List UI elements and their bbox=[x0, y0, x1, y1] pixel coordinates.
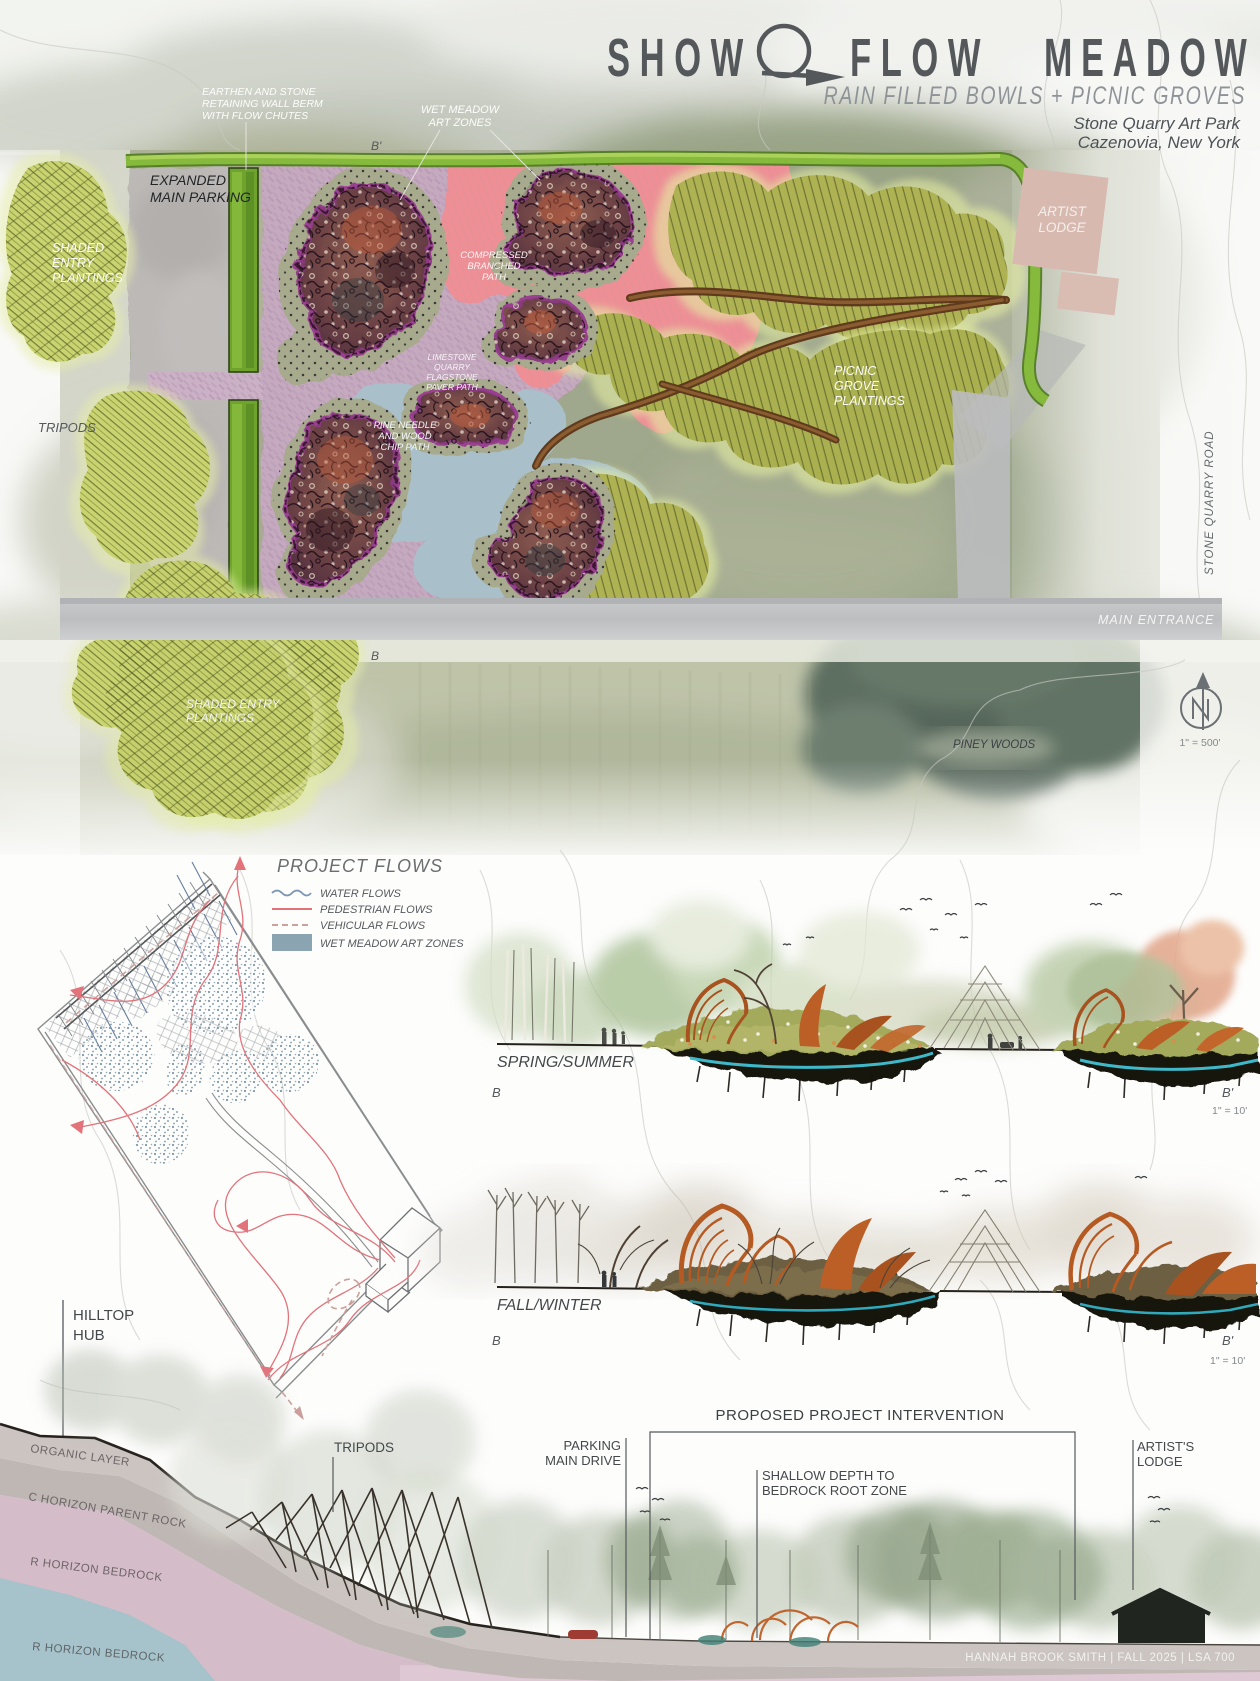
svg-text:STONE QUARRY ROAD: STONE QUARRY ROAD bbox=[1204, 430, 1216, 575]
svg-text:EXPANDED: EXPANDED bbox=[150, 172, 226, 188]
svg-text:ARTIST'S: ARTIST'S bbox=[1137, 1439, 1194, 1454]
svg-text:LODGE: LODGE bbox=[1137, 1454, 1183, 1469]
svg-text:RETAINING WALL BERM: RETAINING WALL BERM bbox=[202, 98, 323, 110]
svg-text:B': B' bbox=[371, 139, 382, 153]
svg-text:SHOW: SHOW bbox=[607, 27, 753, 88]
svg-text:FLOW: FLOW bbox=[850, 27, 990, 88]
svg-text:COMPRESSED: COMPRESSED bbox=[460, 250, 528, 261]
svg-text:SHADED: SHADED bbox=[52, 241, 104, 255]
svg-text:MAIN DRIVE: MAIN DRIVE bbox=[545, 1453, 621, 1468]
svg-text:1" = 500': 1" = 500' bbox=[1179, 737, 1220, 749]
svg-text:PEDESTRIAN FLOWS: PEDESTRIAN FLOWS bbox=[320, 904, 433, 916]
svg-text:B: B bbox=[492, 1085, 501, 1100]
svg-text:PINE NEEDLE: PINE NEEDLE bbox=[374, 420, 437, 431]
svg-text:PARKING: PARKING bbox=[563, 1438, 621, 1453]
svg-text:VEHICULAR FLOWS: VEHICULAR FLOWS bbox=[320, 920, 426, 932]
svg-text:LODGE: LODGE bbox=[1038, 220, 1086, 235]
svg-text:LIMESTONE: LIMESTONE bbox=[428, 352, 477, 362]
svg-text:PLANTINGS: PLANTINGS bbox=[834, 394, 906, 408]
svg-text:CHIP PATH: CHIP PATH bbox=[381, 442, 430, 453]
svg-text:TRIPODS: TRIPODS bbox=[38, 420, 96, 435]
svg-text:QUARRY: QUARRY bbox=[434, 362, 471, 372]
svg-text:HANNAH BROOK SMITH | FALL 2025: HANNAH BROOK SMITH | FALL 2025 | LSA 700 bbox=[965, 1652, 1235, 1664]
svg-text:WET MEADOW: WET MEADOW bbox=[421, 104, 501, 116]
svg-text:SHADED ENTRY: SHADED ENTRY bbox=[186, 697, 281, 711]
svg-text:1" = 10': 1" = 10' bbox=[1212, 1105, 1247, 1117]
svg-text:GROVE: GROVE bbox=[834, 379, 880, 393]
svg-text:WITH FLOW CHUTES: WITH FLOW CHUTES bbox=[202, 110, 308, 122]
svg-text:HUB: HUB bbox=[73, 1327, 105, 1344]
svg-text:PAVER PATH: PAVER PATH bbox=[426, 382, 478, 392]
svg-text:PINEY WOODS: PINEY WOODS bbox=[953, 739, 1036, 751]
svg-text:B: B bbox=[371, 649, 379, 663]
svg-text:ART ZONES: ART ZONES bbox=[428, 117, 492, 129]
svg-text:PLANTINGS: PLANTINGS bbox=[186, 711, 254, 725]
svg-text:1" = 10': 1" = 10' bbox=[1210, 1355, 1245, 1367]
svg-text:MAIN PARKING: MAIN PARKING bbox=[150, 189, 251, 205]
svg-text:ARTIST: ARTIST bbox=[1037, 204, 1088, 219]
svg-text:PATH: PATH bbox=[482, 272, 506, 283]
svg-text:Stone Quarry Art Park: Stone Quarry Art Park bbox=[1073, 114, 1241, 133]
svg-text:PLANTINGS: PLANTINGS bbox=[52, 271, 124, 285]
svg-text:PROJECT FLOWS: PROJECT FLOWS bbox=[277, 856, 443, 876]
svg-text:FALL/WINTER: FALL/WINTER bbox=[497, 1297, 602, 1314]
svg-text:HILLTOP: HILLTOP bbox=[73, 1307, 134, 1324]
svg-text:MEADOW: MEADOW bbox=[1044, 27, 1256, 88]
svg-text:B': B' bbox=[1222, 1333, 1234, 1348]
svg-text:WET MEADOW ART ZONES: WET MEADOW ART ZONES bbox=[320, 938, 464, 950]
svg-text:EARTHEN AND STONE: EARTHEN AND STONE bbox=[202, 86, 317, 98]
svg-text:PICNIC: PICNIC bbox=[834, 364, 877, 378]
svg-text:SPRING/SUMMER: SPRING/SUMMER bbox=[497, 1054, 634, 1071]
svg-text:AND WOOD: AND WOOD bbox=[377, 431, 431, 442]
svg-text:BEDROCK ROOT ZONE: BEDROCK ROOT ZONE bbox=[762, 1483, 907, 1498]
svg-text:RAIN FILLED BOWLS + PICNIC GRO: RAIN FILLED BOWLS + PICNIC GROVES bbox=[824, 82, 1246, 110]
svg-text:TRIPODS: TRIPODS bbox=[334, 1440, 394, 1455]
svg-text:ENTRY: ENTRY bbox=[52, 256, 96, 270]
svg-text:Cazenovia, New York: Cazenovia, New York bbox=[1078, 133, 1242, 152]
svg-text:B: B bbox=[492, 1333, 501, 1348]
svg-text:WATER FLOWS: WATER FLOWS bbox=[320, 888, 402, 900]
svg-text:PROPOSED PROJECT INTERVENTION: PROPOSED PROJECT INTERVENTION bbox=[716, 1407, 1005, 1424]
svg-text:B': B' bbox=[1222, 1085, 1234, 1100]
svg-text:BRANCHED: BRANCHED bbox=[467, 261, 520, 272]
svg-text:MAIN ENTRANCE: MAIN ENTRANCE bbox=[1098, 613, 1214, 627]
svg-text:FLAGSTONE: FLAGSTONE bbox=[426, 372, 478, 382]
svg-text:SHALLOW DEPTH TO: SHALLOW DEPTH TO bbox=[762, 1468, 894, 1483]
